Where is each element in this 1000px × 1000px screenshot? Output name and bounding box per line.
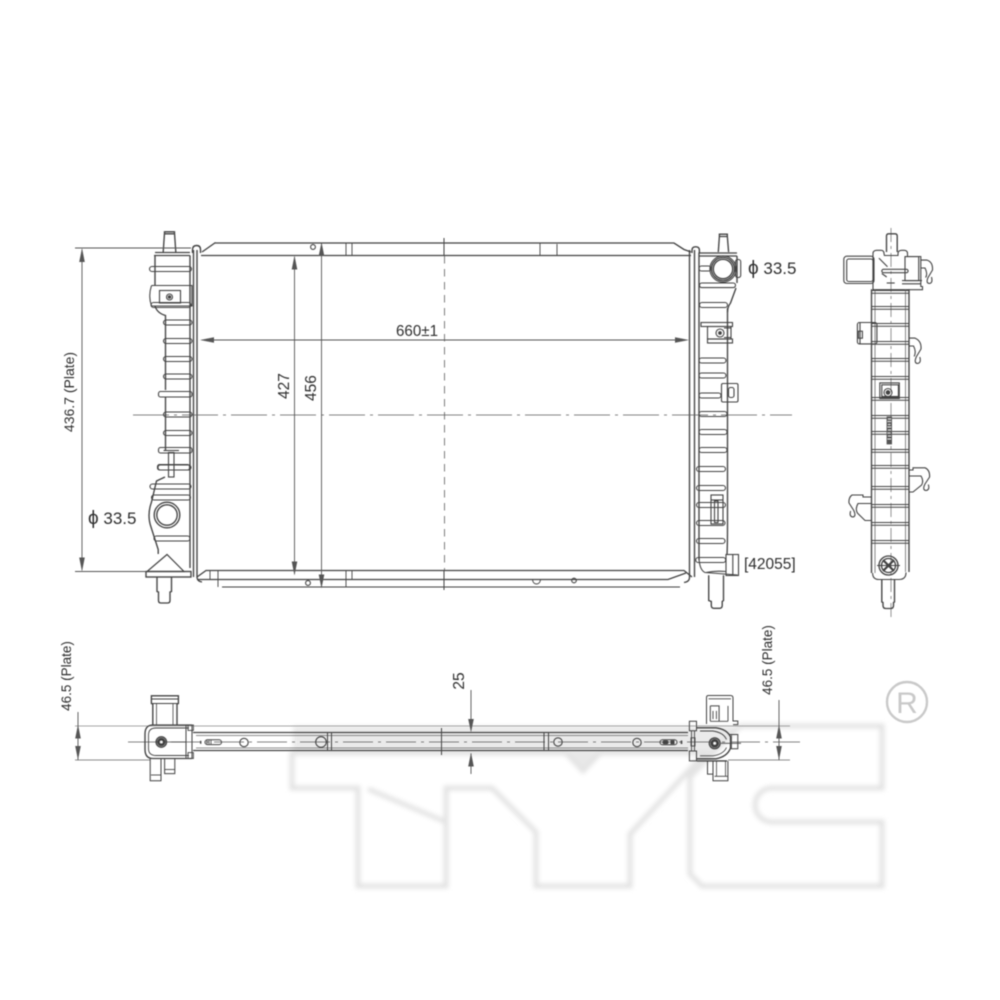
svg-text:46.5 (Plate): 46.5 (Plate) bbox=[59, 641, 74, 711]
svg-text:ϕ 33.5: ϕ 33.5 bbox=[748, 258, 796, 279]
svg-text:25: 25 bbox=[451, 672, 468, 689]
svg-text:ϕ 33.5: ϕ 33.5 bbox=[88, 508, 136, 529]
svg-text:46.5 (Plate): 46.5 (Plate) bbox=[760, 625, 775, 695]
svg-text:660±1: 660±1 bbox=[396, 323, 438, 340]
svg-text:R: R bbox=[896, 687, 918, 720]
svg-text:436.7 (Plate): 436.7 (Plate) bbox=[61, 352, 77, 432]
svg-text:456: 456 bbox=[303, 375, 320, 401]
svg-text:[42055]: [42055] bbox=[744, 556, 796, 573]
svg-text:427: 427 bbox=[276, 373, 293, 399]
